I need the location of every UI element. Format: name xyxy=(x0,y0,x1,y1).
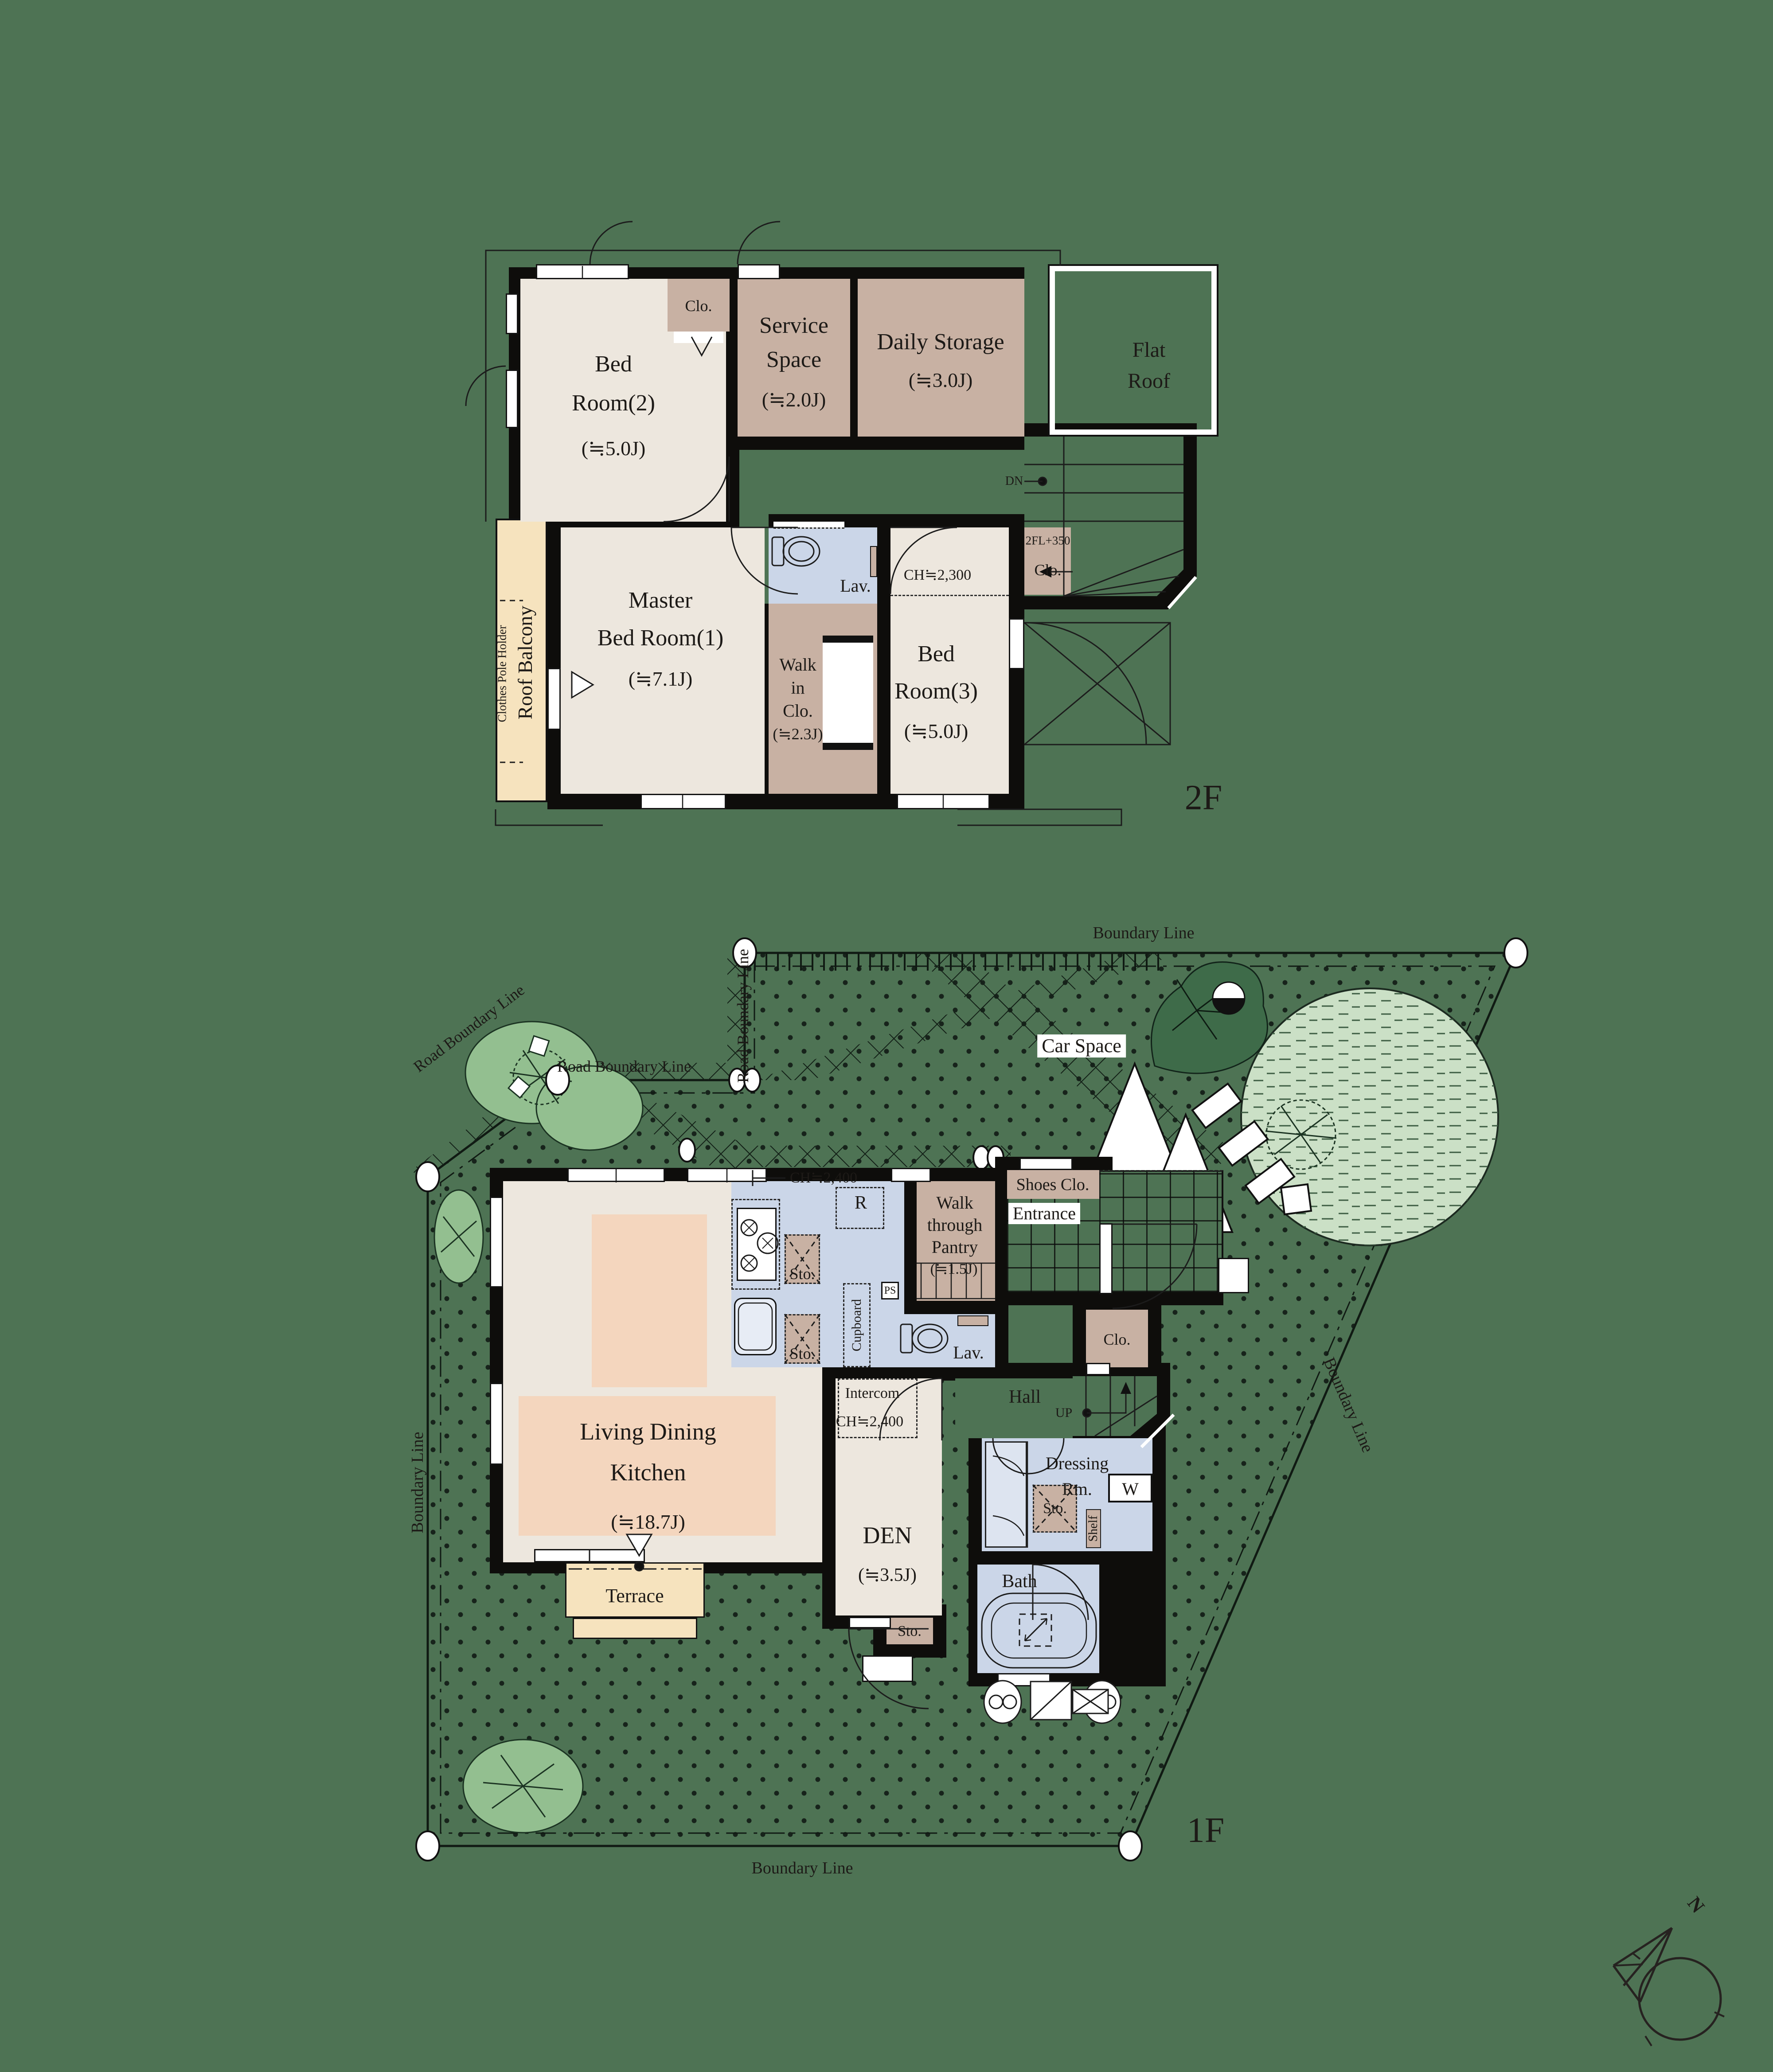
f1-floor-label: 1F xyxy=(1187,1813,1225,1848)
f1-hall-floor-a xyxy=(1008,1305,1073,1363)
f2-wic-size: (≒2.3J) xyxy=(773,726,823,742)
f2-window-w2 xyxy=(506,370,518,428)
f1-ldk-size: (≒18.7J) xyxy=(611,1512,685,1532)
f1-window-n2 xyxy=(687,1168,767,1182)
f1-ldk-rug-upper xyxy=(592,1214,707,1387)
f1-sto-den-label: Sto. xyxy=(898,1624,922,1639)
f2-lav-door-panel xyxy=(870,546,877,577)
f1-dressing-sto-label: Sto. xyxy=(1043,1501,1067,1516)
f1-basin-counter xyxy=(985,1441,1027,1548)
f1-clo-label: Clo. xyxy=(1103,1331,1130,1347)
road-boundary-horiz-label: Road Boundary Line xyxy=(557,1058,691,1074)
f1-bath-window xyxy=(997,1673,1051,1686)
f2-wic-label2: in xyxy=(791,679,804,697)
f2-window-n2 xyxy=(738,264,780,279)
f1-window-w2 xyxy=(490,1383,503,1465)
f1-hall-label: Hall xyxy=(1009,1388,1041,1406)
f2-lav-label: Lav. xyxy=(840,577,871,595)
f1-up-label: UP xyxy=(1055,1406,1072,1420)
f1-ldk-label: Living Dining xyxy=(580,1420,716,1444)
f1-porch-tiles xyxy=(1099,1170,1223,1292)
f2-flatroof-label: Flat xyxy=(1133,339,1166,361)
grass-circle xyxy=(1241,988,1498,1245)
f2-daily-size: (≒3.0J) xyxy=(909,370,973,390)
f1-kitchen-sto1-label: Sto. xyxy=(789,1266,815,1282)
f1-fridge-label: R xyxy=(855,1194,867,1212)
f2-service-size: (≒2.0J) xyxy=(762,390,826,410)
f1-shoes-label: Shoes Clo. xyxy=(1016,1176,1090,1193)
f2-daily-floor xyxy=(858,279,1024,437)
f2-master-size: (≒7.1J) xyxy=(629,669,693,689)
f1-window-n4 xyxy=(1019,1158,1073,1170)
f2-ch-label: CH≒2,300 xyxy=(904,568,971,583)
f2-bedroom3-label2: Room(3) xyxy=(894,680,978,703)
f1-stove xyxy=(737,1208,777,1281)
f1-window-n3 xyxy=(891,1168,931,1182)
boundary-line-left-label: Boundary Line xyxy=(409,1432,426,1533)
f1-sink xyxy=(734,1298,777,1355)
f1-window-n1 xyxy=(567,1168,665,1182)
f1-den-size: (≒3.5J) xyxy=(858,1566,917,1584)
f1-dressing-label2: Rm. xyxy=(1062,1480,1092,1498)
f1-porch-step xyxy=(1218,1258,1249,1293)
f1-cupboard-label: Cupboard xyxy=(850,1299,863,1351)
f2-hall-floor xyxy=(739,450,1024,514)
f1-pantry-label: Walk xyxy=(936,1194,973,1212)
f1-hall-clo-gap xyxy=(1086,1363,1110,1375)
f2-closet-label: Clo. xyxy=(685,298,712,314)
f1-terrace-slider xyxy=(534,1549,645,1562)
f1-dressing-label: Dressing xyxy=(1046,1455,1109,1472)
f2-dn-label: DN xyxy=(1005,475,1023,488)
tree-southwest xyxy=(463,1740,583,1833)
f2-wic-label: Walk xyxy=(779,656,816,674)
f1-w-label: W xyxy=(1122,1480,1139,1498)
f2-service-label: Service xyxy=(759,314,828,337)
f2-clo-fl-label: Clo. xyxy=(1034,562,1061,578)
boundary-line-top-label: Boundary Line xyxy=(1093,925,1194,941)
f2-bedroom2-label2: Room(2) xyxy=(572,392,655,415)
f1-ldk-label2: Kitchen xyxy=(610,1460,686,1484)
f2-2fl-label: 2FL+350 xyxy=(1026,535,1070,547)
f1-wall-porch-s xyxy=(1113,1292,1223,1305)
f1-den-window xyxy=(849,1617,891,1628)
f1-ps-label: PS xyxy=(884,1285,896,1296)
f1-pantry-size: (≒1.5J) xyxy=(930,1262,978,1277)
f1-shelf-label: Shelf xyxy=(1087,1515,1100,1541)
floor-plan-canvas: Bed Room(2) (≒5.0J) Clo. Service Space (… xyxy=(0,0,1773,2072)
f2-bedroom2-size: (≒5.0J) xyxy=(582,438,646,459)
f2-roof-door xyxy=(1009,618,1024,669)
f2-closet-opening xyxy=(674,332,723,343)
f2-flatroof-label2: Roof xyxy=(1128,371,1170,392)
f2-bedroom2-label: Bed xyxy=(595,353,632,376)
road-boundary-vert-label: Road Boundary Line xyxy=(735,949,751,1083)
f1-lav-window xyxy=(957,1315,988,1326)
f2-window-s-bed3 xyxy=(897,794,990,809)
f2-window-s-master xyxy=(640,794,726,809)
f2-wic-label3: Clo. xyxy=(783,702,813,720)
f1-pantry-label2: through xyxy=(927,1216,982,1234)
f1-lav-label: Lav. xyxy=(953,1344,984,1362)
f2-daily-label: Daily Storage xyxy=(877,331,1004,354)
boundary-line-bottom-label: Boundary Line xyxy=(751,1860,853,1877)
f2-window-w1 xyxy=(506,293,518,334)
f2-bedroom3-label: Bed xyxy=(918,643,955,666)
f1-kitchen-ch: CH≒2,400 xyxy=(790,1171,857,1186)
f2-window-n1 xyxy=(536,264,629,279)
f2-master-label2: Bed Room(1) xyxy=(598,627,724,650)
f1-entrance-door-gap xyxy=(1099,1223,1113,1294)
f1-kitchen-sto2-label: Sto. xyxy=(789,1346,815,1362)
f2-wic-shelf xyxy=(823,636,873,750)
f2-service-label2: Space xyxy=(766,348,821,371)
f1-car-space-label: Car Space xyxy=(1037,1034,1126,1057)
f1-entrance-label: Entrance xyxy=(1008,1203,1080,1224)
f2-floor-label: 2F xyxy=(1185,780,1222,816)
f1-den-equip xyxy=(862,1655,913,1682)
f2-balcony-door xyxy=(547,668,561,730)
compass-icon xyxy=(1613,1928,1724,2046)
f1-intercom-label: Intercom xyxy=(845,1386,900,1401)
f1-den-ch-label: CH≒2,400 xyxy=(836,1414,903,1429)
f2-balcony-holder-label: Clothes Pole Holder xyxy=(496,625,508,722)
f1-pantry-label3: Pantry xyxy=(932,1238,978,1256)
f2-bedroom3-size: (≒5.0J) xyxy=(904,721,969,741)
f2-master-floor xyxy=(561,527,765,794)
f1-window-w1 xyxy=(490,1197,503,1288)
f1-bath-floor xyxy=(977,1565,1099,1673)
f2-master-label: Master xyxy=(629,589,692,612)
f1-den-label: DEN xyxy=(863,1523,912,1547)
f1-terrace-label: Terrace xyxy=(605,1586,664,1606)
f1-bath-label: Bath xyxy=(1002,1572,1037,1591)
f1-terrace-step xyxy=(573,1618,697,1639)
f2-balcony-label: Roof Balcony xyxy=(515,606,535,720)
f2-bedroom3-ch-line xyxy=(890,595,1009,596)
f2-lav-vent xyxy=(773,522,844,529)
